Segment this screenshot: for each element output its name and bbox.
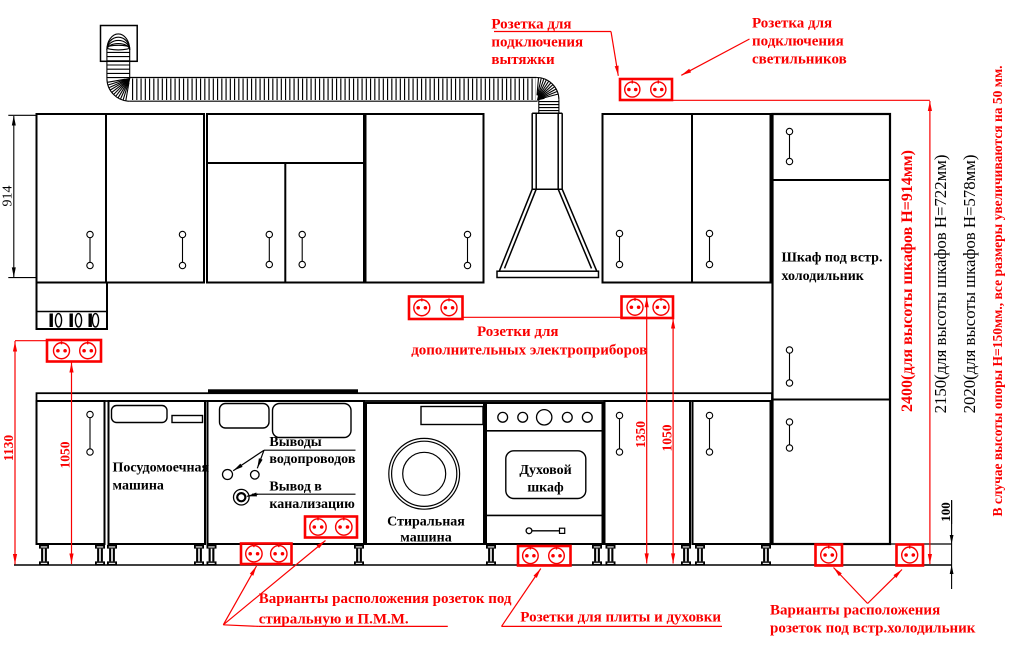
svg-text:2150(для высоты шкафов Н=722мм: 2150(для высоты шкафов Н=722мм) xyxy=(931,155,950,414)
svg-text:холодильник: холодильник xyxy=(782,269,865,284)
svg-text:Варианты расположения: Варианты расположения xyxy=(770,603,940,619)
svg-text:В случае высоты опоры Н=150мм.: В случае высоты опоры Н=150мм., все разм… xyxy=(990,65,1005,516)
svg-text:розеток под встр.холодильник: розеток под встр.холодильник xyxy=(770,621,976,637)
svg-text:1050: 1050 xyxy=(660,424,675,451)
svg-text:1050: 1050 xyxy=(58,441,73,468)
svg-text:Духовой: Духовой xyxy=(519,463,571,478)
svg-text:подключения: подключения xyxy=(752,34,844,50)
svg-text:2400(для высоты шкафов Н=914мм: 2400(для высоты шкафов Н=914мм) xyxy=(899,150,916,412)
svg-text:дополнительных электроприборов: дополнительных электроприборов xyxy=(411,343,647,359)
svg-text:Варианты расположения розеток: Варианты расположения розеток под xyxy=(259,591,512,607)
svg-text:машина: машина xyxy=(400,531,451,546)
svg-text:стиральную и П.М.М.: стиральную и П.М.М. xyxy=(259,612,409,628)
svg-text:шкаф: шкаф xyxy=(527,481,564,496)
svg-text:машина: машина xyxy=(113,479,164,494)
svg-text:канализацию: канализацию xyxy=(269,497,355,512)
svg-text:Шкаф под встр.: Шкаф под встр. xyxy=(782,251,883,266)
svg-text:водопроводов: водопроводов xyxy=(269,452,355,467)
svg-text:Розетка для: Розетка для xyxy=(491,17,571,33)
svg-text:Розетка для: Розетка для xyxy=(752,16,832,32)
svg-text:Выводы: Выводы xyxy=(269,435,321,450)
svg-text:Посудомоечная: Посудомоечная xyxy=(113,461,210,476)
svg-text:Розетки для: Розетки для xyxy=(477,324,559,340)
svg-text:914: 914 xyxy=(1,186,16,207)
svg-text:вытяжки: вытяжки xyxy=(491,52,555,68)
svg-text:1350: 1350 xyxy=(633,421,648,448)
svg-text:подключения: подключения xyxy=(491,35,583,51)
svg-text:Розетки для плиты и духовки: Розетки для плиты и духовки xyxy=(520,610,721,626)
svg-text:100: 100 xyxy=(938,502,953,522)
svg-text:2020(для высоты шкафов Н=578мм: 2020(для высоты шкафов Н=578мм) xyxy=(960,155,979,414)
svg-text:1130: 1130 xyxy=(1,435,16,462)
svg-text:Вывод в: Вывод в xyxy=(269,480,322,495)
svg-text:светильников: светильников xyxy=(752,52,847,68)
svg-text:Стиральная: Стиральная xyxy=(387,515,465,530)
